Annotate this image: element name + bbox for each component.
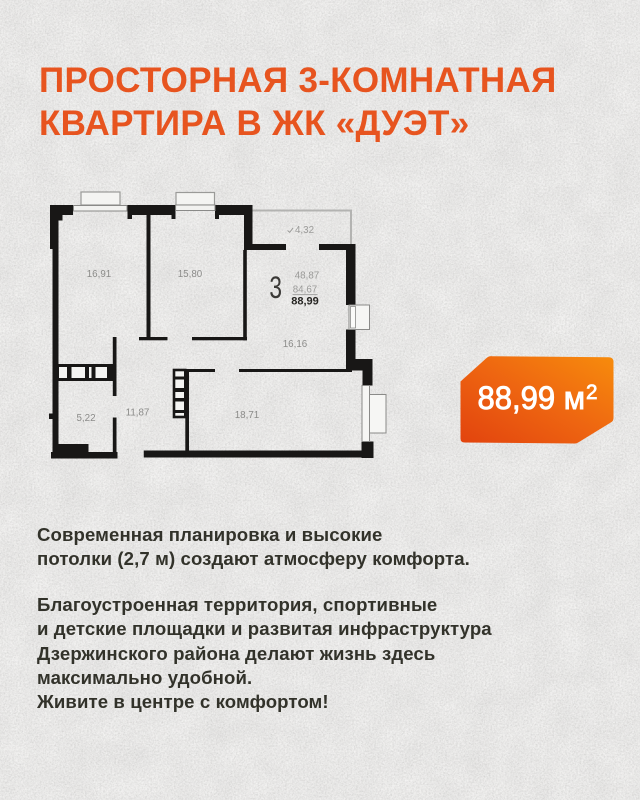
svg-text:88,99: 88,99 <box>291 296 319 308</box>
svg-text:3: 3 <box>269 270 282 306</box>
svg-text:18,71: 18,71 <box>235 410 260 421</box>
svg-text:16,16: 16,16 <box>283 339 308 350</box>
svg-text:15,80: 15,80 <box>178 269 203 280</box>
svg-text:2: 2 <box>586 381 598 404</box>
svg-text:48,87: 48,87 <box>295 271 320 282</box>
svg-text:16,91: 16,91 <box>87 269 112 280</box>
svg-text:4,32: 4,32 <box>295 225 314 236</box>
svg-text:11,87: 11,87 <box>126 408 150 419</box>
svg-text:84,67: 84,67 <box>293 285 318 296</box>
svg-text:5,22: 5,22 <box>76 413 95 424</box>
svg-text:88,99 м: 88,99 м <box>478 380 586 416</box>
